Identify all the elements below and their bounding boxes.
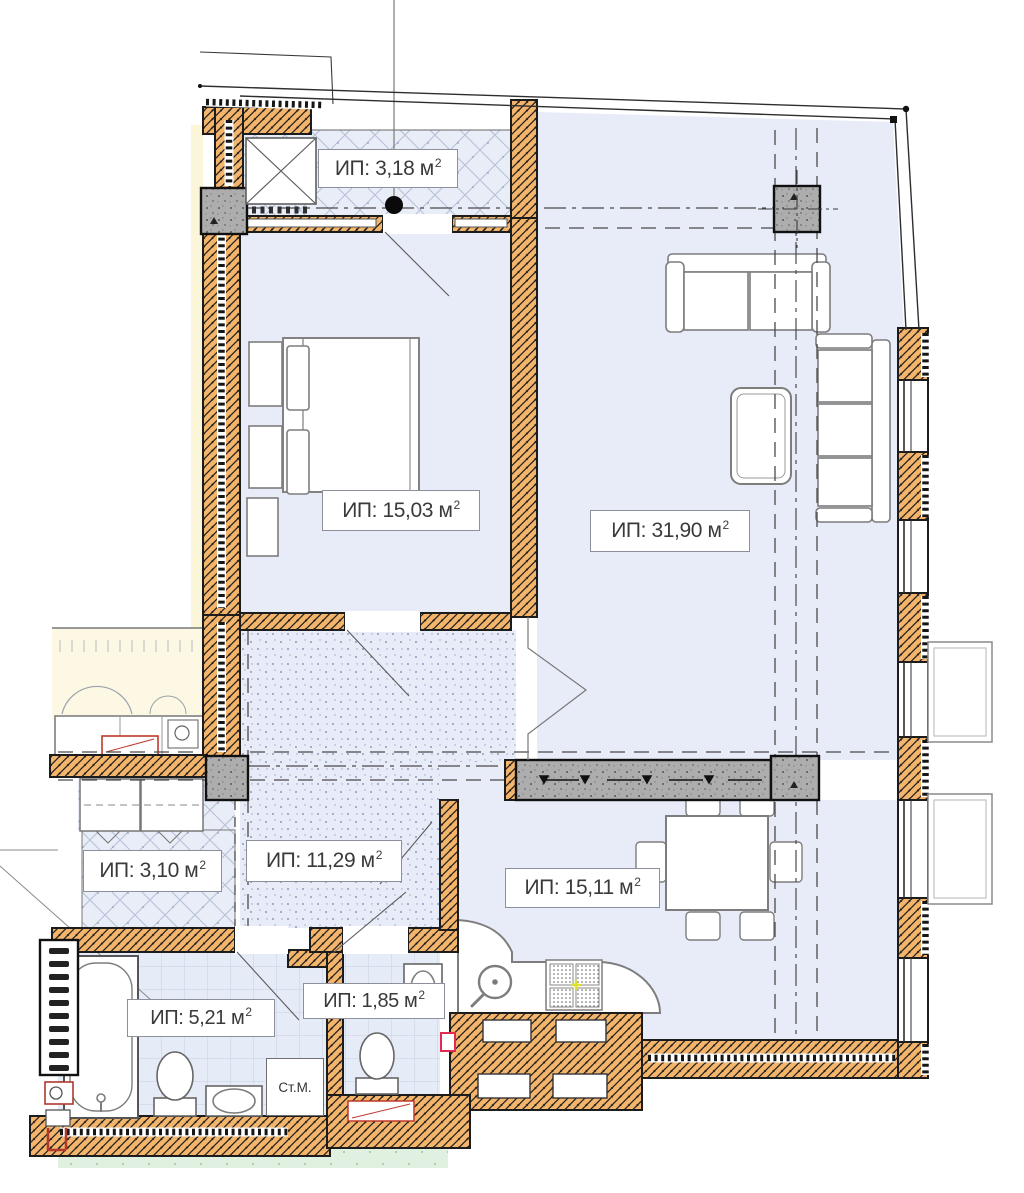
room-label-sup: 2 [454, 498, 460, 512]
dining-table [666, 816, 768, 910]
room-label-text: ИП: 5,21 м [150, 1007, 244, 1030]
column [206, 756, 248, 800]
wall-right-base [898, 328, 928, 1078]
washing-machine: Ст.М. [266, 1058, 324, 1116]
room-label-text: ИП: 11,29 м [266, 849, 375, 873]
room-label-text: ИП: 15,11 м [524, 876, 633, 900]
room-label-sup: 2 [376, 848, 382, 862]
window-sill [246, 219, 376, 227]
column [771, 756, 819, 800]
riser-marker [441, 1033, 455, 1051]
sofa [666, 254, 830, 332]
room-label-bathroom: ИП: 5,21 м2 [127, 999, 275, 1037]
wall [511, 218, 537, 617]
chair [686, 912, 720, 940]
room-label-sup: 2 [634, 875, 640, 889]
toilet-tank [356, 1078, 398, 1094]
wall [50, 755, 207, 777]
wall [52, 928, 235, 952]
toilet [360, 1033, 394, 1079]
room-label-kitchen: ИП: 15,11 м2 [505, 868, 660, 908]
washing-machine-label: Ст.М. [278, 1080, 311, 1095]
axis-dot [385, 196, 403, 214]
floor-plan: ИП: 3,18 м2 ИП: 15,03 м2 ИП: 31,90 м2 ИП… [0, 0, 1024, 1193]
wall [420, 613, 511, 630]
wall [327, 952, 343, 1100]
nightstand [249, 426, 282, 488]
column [201, 188, 247, 234]
room-label-text: ИП: 3,18 м [335, 157, 434, 181]
exterior-unit-box [928, 794, 992, 904]
room-label-bedroom: ИП: 15,03 м2 [322, 490, 480, 531]
sofa [816, 334, 890, 522]
room-label-sup: 2 [418, 988, 424, 1002]
nightstand [249, 342, 282, 406]
exterior-unit-box [928, 642, 992, 742]
wall [440, 800, 458, 930]
room-label-sup: 2 [199, 858, 205, 872]
room-label-left-balcony: ИП: 3,10 м2 [83, 850, 222, 892]
room-label-wc: ИП: 1,85 м2 [303, 983, 445, 1019]
wall [511, 100, 537, 218]
room-label-sup: 2 [723, 518, 729, 532]
room-label-living-room: ИП: 31,90 м2 [590, 510, 750, 552]
room-label-sup: 2 [245, 1005, 251, 1019]
wall [408, 928, 458, 952]
wall [240, 613, 345, 630]
room-label-text: ИП: 1,85 м [323, 990, 417, 1013]
chair [740, 912, 774, 940]
room-label-text: ИП: 15,03 м [342, 499, 452, 523]
wall [505, 760, 516, 800]
room-label-hallway: ИП: 11,29 м2 [246, 840, 402, 882]
toilet [157, 1052, 193, 1100]
dresser [247, 498, 278, 556]
pillow [287, 346, 309, 410]
room-label-sup: 2 [435, 156, 441, 170]
room-label-top-balcony: ИП: 3,18 м2 [318, 149, 458, 188]
upper-rail-line [200, 52, 333, 104]
room-label-text: ИП: 31,90 м [611, 519, 721, 543]
room-label-text: ИП: 3,10 м [99, 859, 198, 883]
pillow [287, 430, 309, 494]
window-sill [455, 219, 507, 227]
